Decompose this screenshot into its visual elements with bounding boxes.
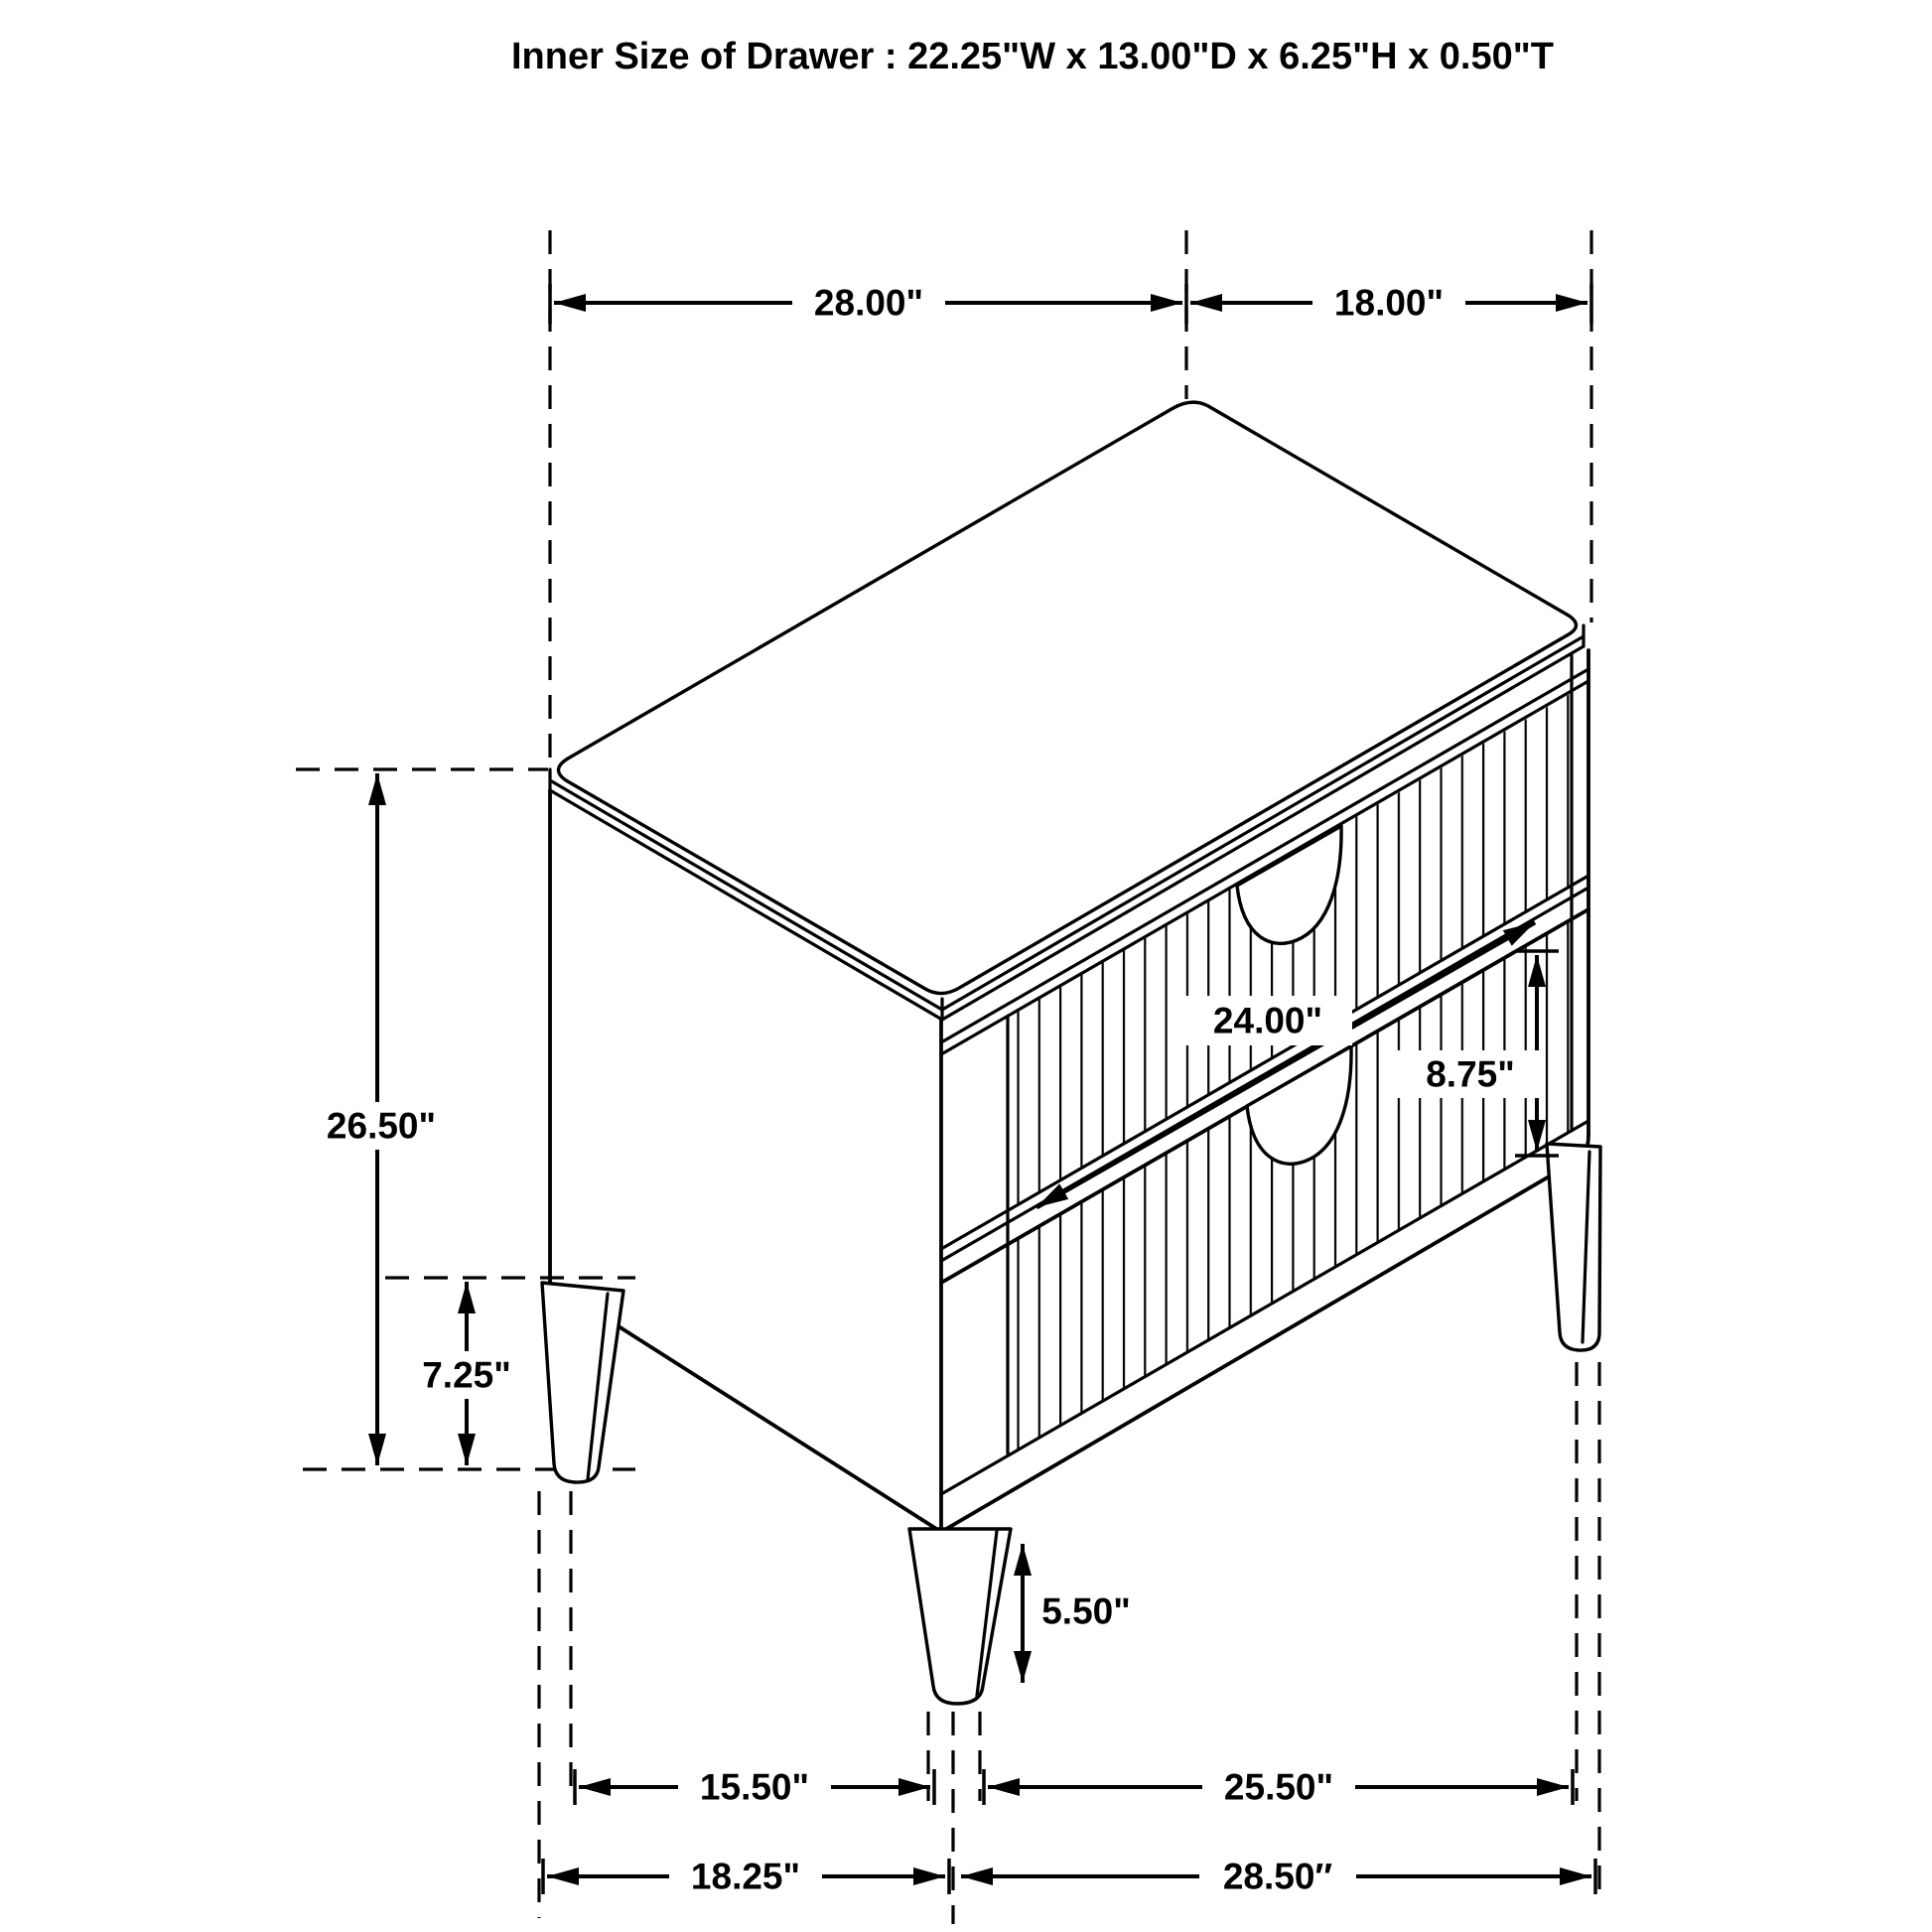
dim-top-width-label: 28.00" [814, 283, 923, 324]
nightstand-dimension-diagram: Inner Size of Drawer : 22.25"W x 13.00"D… [0, 0, 1932, 1932]
drawing-title: Inner Size of Drawer : 22.25"W x 13.00"D… [511, 36, 1554, 77]
dim-base-side-depth-label: 18.25" [691, 1857, 800, 1897]
dim-legs-front-spacing-label: 25.50" [1224, 1767, 1333, 1808]
dim-leg-front-height: 7.25" [399, 1282, 534, 1465]
dim-top-width: 28.00" [550, 280, 1186, 326]
dim-leg-front-height-label: 7.25" [422, 1355, 511, 1396]
dim-base-side-depth: 18.25" [543, 1854, 949, 1899]
dim-leg-height: 5.50" [1023, 1544, 1131, 1683]
dim-top-depth: 18.00" [1190, 280, 1591, 326]
dim-legs-front-spacing: 25.50" [984, 1764, 1573, 1810]
front-left-leg [542, 1283, 623, 1482]
dim-legs-side-spacing-label: 15.50" [700, 1767, 809, 1808]
diagram-page: Inner Size of Drawer : 22.25"W x 13.00"D… [0, 0, 1932, 1932]
front-center-leg [909, 1529, 1011, 1704]
dim-top-depth-label: 18.00" [1334, 283, 1444, 324]
dim-drawer-width-label: 24.00" [1213, 1001, 1322, 1041]
dim-overall-height-label: 26.50" [327, 1106, 436, 1147]
dim-drawer-front-height-label: 8.75" [1426, 1054, 1515, 1095]
dim-leg-height-label: 5.50" [1041, 1591, 1131, 1632]
dim-base-front-width-label: 28.50″ [1223, 1857, 1333, 1897]
dim-base-front-width: 28.50″ [961, 1854, 1595, 1899]
dim-legs-side-spacing: 15.50" [575, 1764, 934, 1810]
right-leg [1547, 1144, 1600, 1350]
